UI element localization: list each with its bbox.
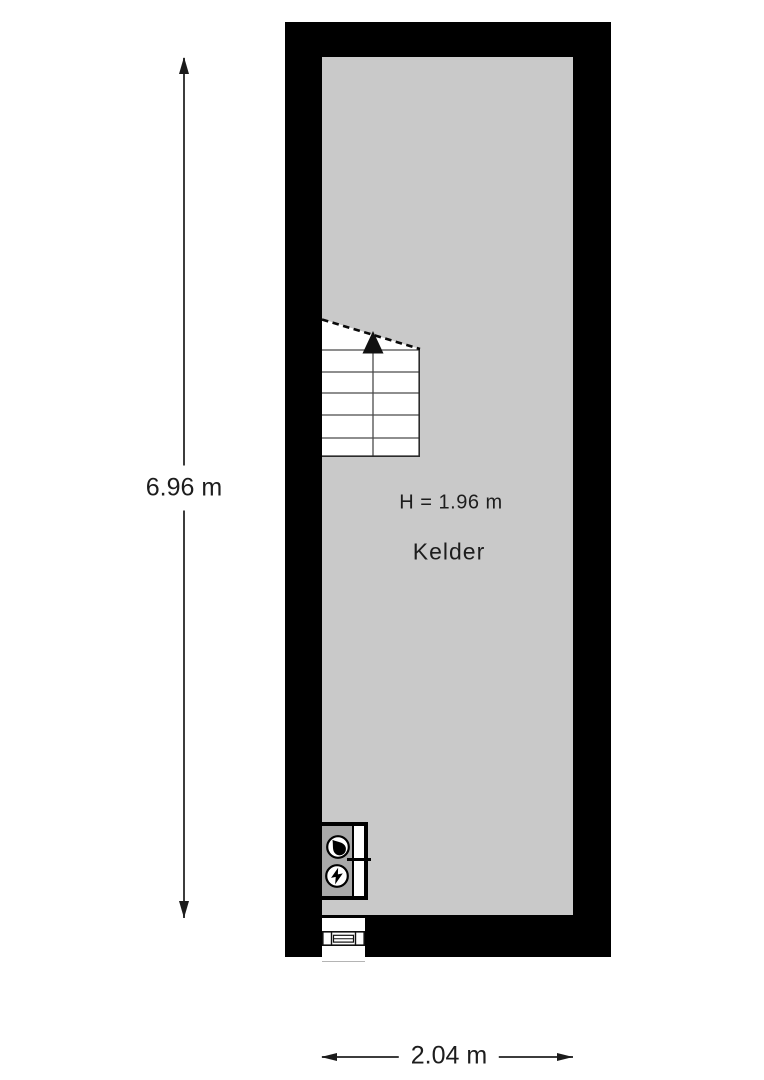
height-dimension-label: 6.96 m [139,466,229,511]
meter-cupboard-door [352,826,364,896]
electric-meter-icon [324,863,350,889]
gas-meter-icon [325,834,351,860]
dimension-arrow-left-icon [321,1053,337,1061]
staircase [322,318,421,458]
ceiling-height-label: H = 1.96 m [399,492,502,515]
width-dimension-label: 2.04 m [399,1040,499,1073]
dimension-arrow-up-icon [179,57,189,74]
dimension-arrow-right-icon [557,1053,573,1061]
window-symbol [322,918,365,961]
room-name-label: Kelder [413,539,485,566]
cupboard-door-handle-line [347,858,371,861]
meter-cupboard [318,822,368,900]
basement-floor [322,57,573,915]
dimension-arrow-down-icon [179,901,189,918]
floorplan-canvas: H = 1.96 m Kelder 6.96 m 2.04 m [0,0,764,1080]
